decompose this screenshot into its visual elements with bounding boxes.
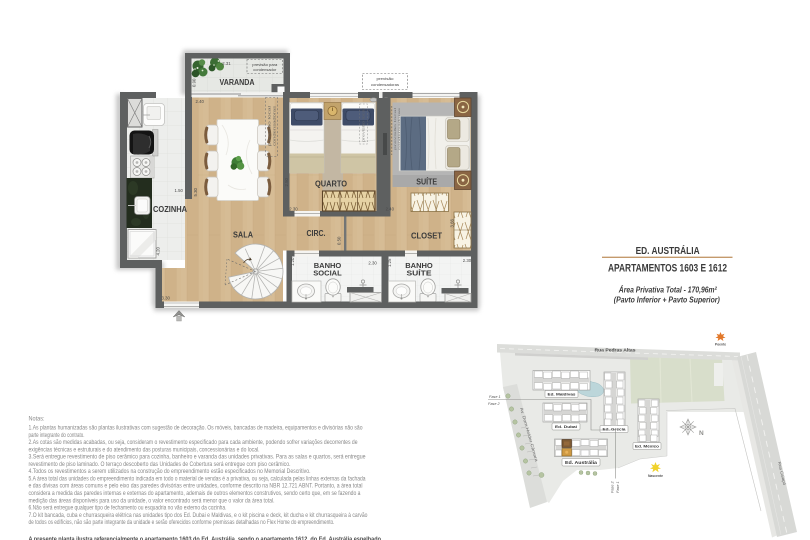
- svg-text:APARTAMENTOS 1603 E 1612: APARTAMENTOS 1603 E 1612: [608, 262, 727, 274]
- svg-text:3.66: 3.66: [449, 219, 454, 228]
- svg-text:exigências técnicas e estrutur: exigências técnicas e estruturais e do a…: [29, 447, 260, 454]
- svg-text:0.50: 0.50: [337, 236, 342, 245]
- svg-text:CIRC.: CIRC.: [307, 229, 326, 238]
- svg-text:2.30: 2.30: [368, 260, 377, 265]
- svg-text:Fase 2: Fase 2: [611, 481, 615, 493]
- svg-text:6.Não será entregue qualquer t: 6.Não será entregue qualquer tipo de fec…: [29, 505, 227, 512]
- svg-text:Ed. Grécia: Ed. Grécia: [603, 427, 627, 432]
- svg-text:Ed. México: Ed. México: [635, 444, 660, 449]
- svg-text:3.30: 3.30: [162, 296, 171, 301]
- svg-text:SALA: SALA: [233, 230, 253, 239]
- svg-text:Fase 2: Fase 2: [488, 402, 500, 406]
- svg-text:Fase 1: Fase 1: [489, 395, 501, 399]
- svg-text:2.30: 2.30: [463, 258, 472, 263]
- svg-text:Ed. Dubai: Ed. Dubai: [555, 424, 577, 429]
- svg-text:Ed. Austrália: Ed. Austrália: [565, 460, 598, 465]
- svg-text:0.90: 0.90: [192, 78, 197, 87]
- svg-text:Notas:: Notas:: [29, 415, 45, 422]
- svg-text:4.20: 4.20: [156, 247, 161, 256]
- svg-text:condensador: condensador: [253, 67, 277, 72]
- svg-text:CLOSET: CLOSET: [411, 232, 442, 241]
- svg-text:SUÍTE: SUÍTE: [407, 269, 432, 278]
- svg-text:Rua Pedras Altas: Rua Pedras Altas: [595, 348, 637, 353]
- svg-text:(Pavto Inferior + Pavto Superi: (Pavto Inferior + Pavto Superior): [614, 294, 720, 304]
- svg-text:Fase 1: Fase 1: [616, 481, 620, 493]
- svg-text:2.30: 2.30: [289, 207, 298, 212]
- svg-text:Poente: Poente: [715, 343, 726, 347]
- svg-text:revestimento de piso laminado.: revestimento de piso laminado. O terraço…: [29, 461, 291, 468]
- svg-text:Ed. Maldivas: Ed. Maldivas: [548, 392, 577, 397]
- svg-text:e das divisas com áreas comuns: e das divisas com áreas comuns e pelo ei…: [29, 483, 363, 490]
- svg-text:2.31: 2.31: [222, 61, 231, 66]
- svg-text:4.Todos os revestimentos a ser: 4.Todos os revestimentos a serem utiliza…: [29, 468, 311, 475]
- svg-text:N: N: [699, 430, 704, 437]
- svg-text:Área Privativa Total - 170,96m: Área Privativa Total - 170,96m²: [618, 285, 718, 295]
- svg-text:condensadoras: condensadoras: [397, 107, 401, 150]
- svg-text:de todos os edifícios, não são: de todos os edifícios, não são parte int…: [29, 519, 335, 526]
- svg-text:1.20: 1.20: [290, 257, 295, 266]
- svg-text:considera a medida das paredes: considera a medida das paredes internas …: [29, 490, 361, 497]
- svg-text:parte integrante do contrato.: parte integrante do contrato.: [29, 432, 85, 439]
- svg-text:Nascente: Nascente: [648, 474, 663, 478]
- svg-text:7.O kit bancada, cuba e churra: 7.O kit bancada, cuba e churrasqueira el…: [29, 512, 368, 519]
- svg-text:2.50: 2.50: [284, 178, 289, 187]
- svg-text:2.As cotas são medidas acabada: 2.As cotas são medidas acabadas, ou seja…: [29, 439, 358, 446]
- svg-text:medição das áreas disponíveis: medição das áreas disponíveis para uso d…: [29, 497, 275, 504]
- svg-text:3.Será entregue revestimento d: 3.Será entregue revestimento de piso cer…: [29, 454, 366, 461]
- svg-text:SOCIAL: SOCIAL: [313, 269, 342, 278]
- svg-text:2.40: 2.40: [386, 207, 395, 212]
- svg-text:1.50: 1.50: [175, 188, 184, 193]
- svg-text:5.30: 5.30: [193, 188, 198, 197]
- svg-text:COZINHA: COZINHA: [153, 205, 187, 214]
- svg-text:A presente planta ilustra refe: A presente planta ilustra referencialmen…: [29, 536, 383, 540]
- svg-text:previsão: previsão: [377, 76, 395, 81]
- svg-text:1.25: 1.25: [387, 258, 392, 267]
- svg-text:1.As plantas humanizadas são p: 1.As plantas humanizadas são plantas ilu…: [29, 425, 363, 432]
- svg-text:previsão local: previsão local: [362, 108, 366, 142]
- svg-text:condensadoras: condensadoras: [371, 82, 399, 87]
- svg-text:QUARTO: QUARTO: [315, 180, 347, 189]
- svg-text:2.40: 2.40: [196, 99, 205, 104]
- svg-text:previsão local: previsão local: [268, 106, 272, 146]
- svg-text:ED. AUSTRÁLIA: ED. AUSTRÁLIA: [636, 244, 700, 257]
- svg-text:SUÍTE: SUÍTE: [416, 178, 438, 187]
- svg-text:VARANDA: VARANDA: [220, 78, 255, 87]
- svg-text:5.A área total das unidades do: 5.A área total das unidades do empreendi…: [29, 476, 366, 483]
- svg-text:condensadoras: condensadoras: [272, 105, 276, 146]
